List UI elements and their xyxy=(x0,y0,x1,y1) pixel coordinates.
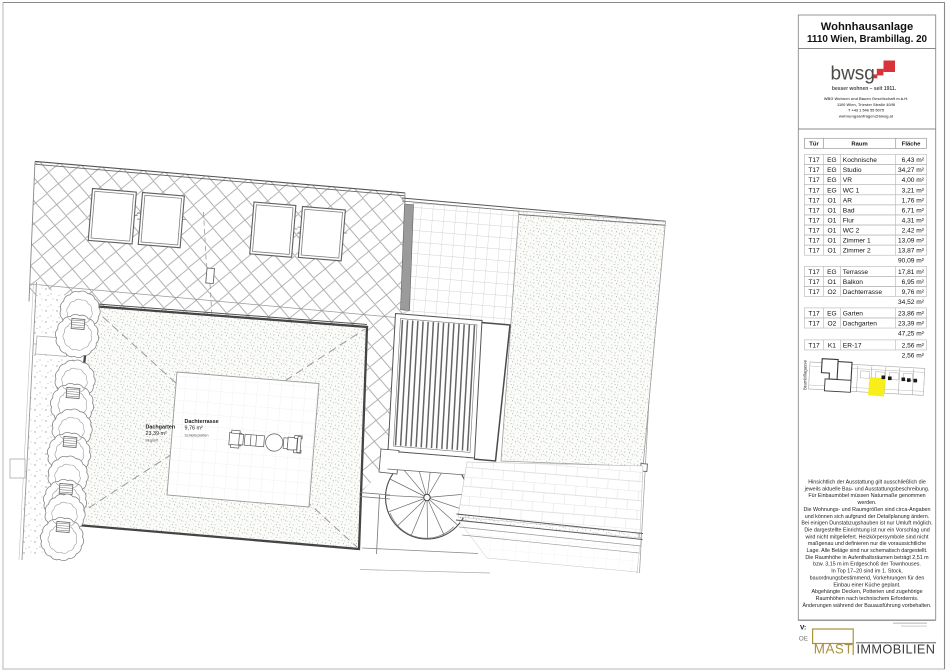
svg-text:6,43 m²: 6,43 m² xyxy=(902,157,925,164)
svg-text:1100 Wien, Triester Straße 40/: 1100 Wien, Triester Straße 40/III xyxy=(837,102,895,107)
svg-text:6,95 m²: 6,95 m² xyxy=(902,279,925,286)
svg-text:In Top 17–20 sind im 1. Stock,: In Top 17–20 sind im 1. Stock, xyxy=(831,569,903,575)
svg-text:Kochnische: Kochnische xyxy=(843,157,877,164)
svg-text:T17: T17 xyxy=(808,321,820,328)
svg-text:Änderungen während der Bauausf: Änderungen während der Bauausführung vor… xyxy=(803,602,932,609)
svg-text:13,87 m²: 13,87 m² xyxy=(898,248,925,255)
svg-text:1110 Wien, Brambillag. 20: 1110 Wien, Brambillag. 20 xyxy=(807,34,928,45)
svg-text:Schieferplatten: Schieferplatten xyxy=(185,434,209,438)
svg-text:IMMOBILIEN: IMMOBILIEN xyxy=(857,642,936,657)
svg-text:Balkon: Balkon xyxy=(843,279,863,286)
svg-text:2,42 m²: 2,42 m² xyxy=(902,228,925,235)
svg-text:T17: T17 xyxy=(808,228,820,235)
svg-text:Zimmer 1: Zimmer 1 xyxy=(843,238,871,245)
svg-text:VR: VR xyxy=(843,177,852,184)
svg-text:T17: T17 xyxy=(808,167,820,174)
svg-text:besser wohnen – seit 1911.: besser wohnen – seit 1911. xyxy=(832,86,897,92)
svg-text:werden.: werden. xyxy=(856,500,876,506)
svg-text:wird nicht mitgeliefert. Heizk: wird nicht mitgeliefert. Heizkörpersymbo… xyxy=(805,534,929,540)
svg-text:maßgenau und definieren nur di: maßgenau und definieren nur die voraussi… xyxy=(808,541,926,547)
svg-text:Studio: Studio xyxy=(843,167,862,174)
svg-text:und können sich aufgrund der D: und können sich aufgrund der Detailplanu… xyxy=(805,514,929,520)
svg-text:EG: EG xyxy=(827,269,837,276)
svg-text:T17: T17 xyxy=(808,218,820,225)
svg-text:T17: T17 xyxy=(808,177,820,184)
svg-text:Fläche: Fläche xyxy=(902,142,921,148)
svg-text:K1: K1 xyxy=(828,343,836,350)
svg-text:bauordnungsbestimmend, Vorkehr: bauordnungsbestimmend, Vorkehrungen für … xyxy=(810,575,925,581)
svg-text:6,71 m²: 6,71 m² xyxy=(902,207,925,214)
svg-text:Brambillagasse: Brambillagasse xyxy=(803,359,808,390)
svg-text:Lage. Alle Beläge sind nur sch: Lage. Alle Beläge sind nur schematisch d… xyxy=(807,548,928,554)
svg-text:OE: OE xyxy=(799,636,808,643)
svg-text:T +43 1 546 55 5075: T +43 1 546 55 5075 xyxy=(848,108,885,113)
svg-text:Dachgarten: Dachgarten xyxy=(843,321,877,328)
svg-text:T17: T17 xyxy=(808,248,820,255)
svg-text:2,56 m²: 2,56 m² xyxy=(902,352,925,359)
svg-text:13,09 m²: 13,09 m² xyxy=(898,238,925,245)
svg-text:EG: EG xyxy=(827,311,837,318)
svg-text:T17: T17 xyxy=(808,197,820,204)
svg-text:O1: O1 xyxy=(828,207,837,214)
svg-text:9,76 m²: 9,76 m² xyxy=(902,289,925,296)
svg-text:9,76 m²: 9,76 m² xyxy=(185,426,203,432)
svg-text:T17: T17 xyxy=(808,279,820,286)
svg-text:EG: EG xyxy=(827,157,837,164)
svg-text:Garten: Garten xyxy=(843,311,863,318)
svg-text:Die dargestellte Einrichtung i: Die dargestellte Einrichtung ist nur ein… xyxy=(804,528,929,534)
svg-text:Einbau einer Küche geplant.: Einbau einer Küche geplant. xyxy=(833,582,900,588)
svg-text:2,56 m²: 2,56 m² xyxy=(902,343,925,350)
svg-text:O1: O1 xyxy=(828,238,837,245)
svg-text:Wohnhausanlage: Wohnhausanlage xyxy=(821,21,913,33)
svg-text:T17: T17 xyxy=(808,187,820,194)
svg-text:V:: V: xyxy=(800,625,806,632)
svg-text:17,81 m²: 17,81 m² xyxy=(898,269,925,276)
svg-text:bwsg: bwsg xyxy=(831,64,875,85)
svg-text:WC 1: WC 1 xyxy=(843,187,860,194)
svg-text:O1: O1 xyxy=(828,218,837,225)
svg-text:Die Wohnungs- und Raumgrößen s: Die Wohnungs- und Raumgrößen sind circa-… xyxy=(803,507,930,513)
svg-text:T17: T17 xyxy=(808,343,820,350)
svg-text:Raumhöhen nach technischem Erf: Raumhöhen nach technischem Erfordernis. xyxy=(816,596,919,602)
svg-text:T17: T17 xyxy=(808,207,820,214)
svg-text:Dachterrasse: Dachterrasse xyxy=(843,289,883,296)
svg-text:O1: O1 xyxy=(828,248,837,255)
svg-text:Dachgarten: Dachgarten xyxy=(146,425,176,431)
svg-text:Begrünt: Begrünt xyxy=(146,439,159,443)
svg-text:WC 2: WC 2 xyxy=(843,228,860,235)
svg-text:EG: EG xyxy=(827,187,837,194)
svg-text:T17: T17 xyxy=(808,289,820,296)
svg-text:Die Raumhöhe in Aufenthaltsräu: Die Raumhöhe in Aufenthaltsräumen beträg… xyxy=(805,555,929,561)
svg-text:Hinsichtlich der Ausstattung g: Hinsichtlich der Ausstattung gilt aussch… xyxy=(808,480,926,486)
svg-text:wohnungsanfragen@bwsg.at: wohnungsanfragen@bwsg.at xyxy=(838,113,894,118)
svg-text:jeweils aktuelle Bau- und Auss: jeweils aktuelle Bau- und Ausstattungsbe… xyxy=(804,486,930,492)
svg-text:O1: O1 xyxy=(828,228,837,235)
svg-text:O2: O2 xyxy=(828,289,837,296)
svg-text:T17: T17 xyxy=(808,157,820,164)
svg-text:34,52 m²: 34,52 m² xyxy=(898,299,925,306)
svg-text:Abgehängte Decken, Potterien u: Abgehängte Decken, Potterien und zugehör… xyxy=(811,589,922,595)
svg-text:23,39 m²: 23,39 m² xyxy=(146,431,167,437)
svg-text:90,09 m²: 90,09 m² xyxy=(898,258,925,265)
svg-text:Terrasse: Terrasse xyxy=(843,269,869,276)
svg-text:4,00 m²: 4,00 m² xyxy=(902,177,925,184)
svg-text:3,21 m²: 3,21 m² xyxy=(902,187,925,194)
svg-text:Für Einbaumöbel müssen Naturma: Für Einbaumöbel müssen Naturmaße genomme… xyxy=(808,493,925,499)
svg-text:4,31 m²: 4,31 m² xyxy=(902,218,925,225)
svg-text:MAST: MAST xyxy=(814,642,853,657)
svg-text:O1: O1 xyxy=(828,279,837,286)
svg-text:47,25 m²: 47,25 m² xyxy=(898,330,925,337)
svg-text:AR: AR xyxy=(843,197,852,204)
svg-text:T17: T17 xyxy=(808,311,820,318)
svg-text:Tür: Tür xyxy=(809,142,819,148)
svg-text:Bei einigen Dunstabzugshauben: Bei einigen Dunstabzugshauben ist nur Um… xyxy=(801,521,932,527)
svg-text:ER-17: ER-17 xyxy=(843,343,862,350)
svg-text:T17: T17 xyxy=(808,238,820,245)
svg-text:O1: O1 xyxy=(828,197,837,204)
svg-text:23,39 m²: 23,39 m² xyxy=(898,321,925,328)
svg-text:Raum: Raum xyxy=(851,142,867,148)
svg-text:Zimmer 2: Zimmer 2 xyxy=(843,248,871,255)
svg-text:23,86 m²: 23,86 m² xyxy=(898,311,925,318)
svg-text:Flur: Flur xyxy=(843,218,855,225)
svg-text:O2: O2 xyxy=(828,321,837,328)
svg-text:34,27 m²: 34,27 m² xyxy=(898,167,925,174)
svg-text:Dachterrasse: Dachterrasse xyxy=(185,419,219,425)
svg-text:EG: EG xyxy=(827,177,837,184)
svg-text:WBG Wohnen und Bauen Gesellsch: WBG Wohnen und Bauen Gesellschaft m.b.H. xyxy=(824,96,908,101)
svg-text:T17: T17 xyxy=(808,269,820,276)
svg-text:Bad: Bad xyxy=(843,207,855,214)
svg-text:bzw. 3,15 m im Erdgeschoß der: bzw. 3,15 m im Erdgeschoß der Townhouses… xyxy=(813,562,921,568)
svg-text:EG: EG xyxy=(827,167,837,174)
svg-text:1,76 m²: 1,76 m² xyxy=(902,197,925,204)
